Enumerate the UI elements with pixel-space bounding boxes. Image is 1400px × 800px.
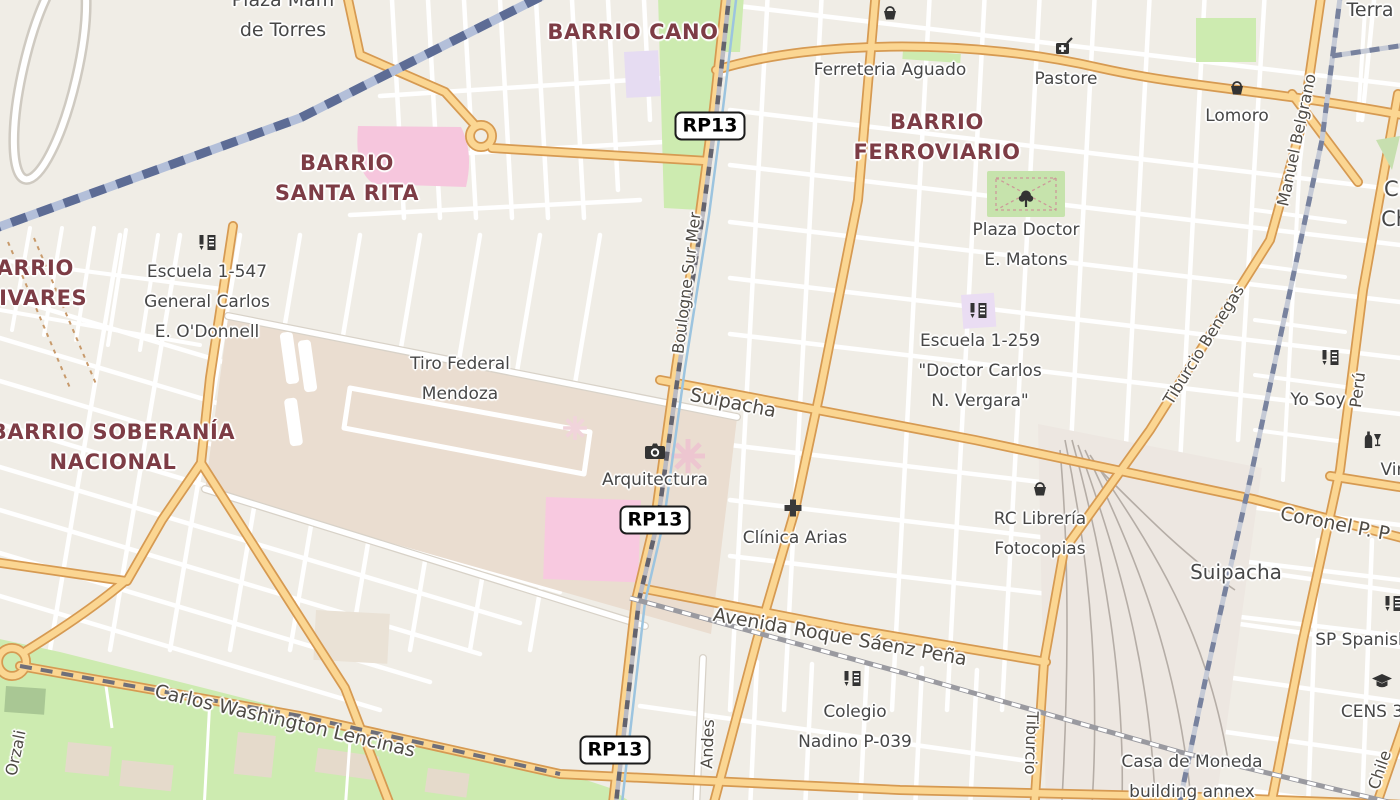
street-label-coronel-p: Coronel P. P bbox=[1278, 499, 1393, 550]
street-label-suipacha: Suipacha bbox=[687, 380, 778, 426]
street-label-carlos-washington-lencinas: Carlos Washington Lencinas bbox=[152, 676, 418, 765]
poi-label-arquitectura: Arquitectura bbox=[602, 465, 708, 495]
poi-label-pastore: Pastore bbox=[1035, 64, 1098, 94]
poi-label-colegio-nadino-text: Colegio bbox=[798, 697, 912, 727]
poi-label-tiro-federal-mendoza: Tiro FederalMendoza bbox=[410, 349, 510, 409]
neighborhood-label-barrio-santa-rita-text: BARRIO bbox=[275, 148, 419, 178]
neighborhood-label-barrio-olivares-text: BARRIO bbox=[0, 253, 87, 283]
poi-label-escuela-1-259-text: N. Vergara" bbox=[918, 386, 1041, 416]
poi-label-plaza-doctor-e-matons: Plaza DoctorE. Matons bbox=[972, 215, 1079, 275]
poi-label-plaza-de-torres-text: Plaza Mam bbox=[232, 0, 335, 15]
street-label-tiburcio: Tiburcio bbox=[1015, 711, 1047, 775]
poi-label-escuela-1-547-text: General Carlos bbox=[144, 287, 270, 317]
neighborhood-label-barrio-olivares-text: OLIVARES bbox=[0, 283, 87, 313]
route-badge-rp13-north: RP13 bbox=[675, 112, 746, 141]
neighborhood-label-barrio-santa-rita: BARRIOSANTA RITA bbox=[275, 148, 419, 208]
neighborhood-label-barrio-olivares: BARRIOOLIVARES bbox=[0, 253, 87, 313]
poi-label-suipacha-area: Suipacha bbox=[1190, 557, 1282, 587]
poi-label-cens-3-text: CENS 3 bbox=[1341, 697, 1400, 727]
neighborhood-label-barrio-ferroviario: BARRIOFERROVIARIO bbox=[853, 107, 1020, 167]
street-label-andes-text: Andes bbox=[692, 719, 724, 769]
poi-label-plaza-de-torres: Plaza Mamde Torres bbox=[232, 0, 335, 45]
poi-label-lomoro: Lomoro bbox=[1205, 101, 1269, 131]
street-label-orzali-text: Orzali bbox=[0, 727, 35, 778]
poi-label-terra: Terra bbox=[1347, 0, 1394, 25]
poi-label-ce-chi-text: CE bbox=[1381, 174, 1400, 204]
poi-label-colegio-nadino-text: Nadino P-039 bbox=[798, 727, 912, 757]
poi-label-plaza-doctor-e-matons-text: Plaza Doctor bbox=[972, 215, 1079, 245]
neighborhood-label-barrio-cano-text: BARRIO CANO bbox=[547, 17, 718, 47]
poi-label-escuela-1-547-text: Escuela 1-547 bbox=[144, 257, 270, 287]
poi-label-escuela-1-259: Escuela 1-259"Doctor CarlosN. Vergara" bbox=[918, 326, 1041, 416]
neighborhood-label-barrio-ferroviario-text: BARRIO bbox=[853, 107, 1020, 137]
street-label-manuel-belgrano-text: Manuel Belgrano bbox=[1268, 71, 1325, 209]
poi-label-terra-text: Terra bbox=[1347, 0, 1394, 25]
neighborhood-label-barrio-santa-rita-text: SANTA RITA bbox=[275, 178, 419, 208]
poi-label-yo-soy-text: Yo Soy bbox=[1290, 385, 1345, 415]
street-label-peru: Perú bbox=[1341, 370, 1375, 409]
neighborhood-label-barrio-soberania-nacional-text: BARRIO SOBERANÍA bbox=[0, 417, 235, 447]
poi-label-ce-chi: CEChi bbox=[1381, 174, 1400, 234]
street-label-boulogne-sur-mer: Boulogne Sur Mer bbox=[663, 210, 710, 355]
street-label-suipacha-text: Suipacha bbox=[687, 380, 778, 426]
poi-label-vineria: Vineri bbox=[1381, 455, 1400, 485]
street-label-avenida-roque-saenz-pena: Avenida Roque Sáenz Peña bbox=[711, 600, 970, 674]
neighborhood-label-barrio-cano: BARRIO CANO bbox=[547, 17, 718, 47]
street-label-chile: Chile bbox=[1359, 746, 1400, 794]
poi-label-tiro-federal-mendoza-text: Mendoza bbox=[410, 379, 510, 409]
poi-label-plaza-doctor-e-matons-text: E. Matons bbox=[972, 245, 1079, 275]
poi-label-suipacha-area-text: Suipacha bbox=[1190, 557, 1282, 587]
poi-label-vineria-text: Vineri bbox=[1381, 455, 1400, 485]
street-label-andes: Andes bbox=[692, 719, 724, 769]
street-label-boulogne-sur-mer-text: Boulogne Sur Mer bbox=[663, 210, 710, 355]
route-badge-rp13-mid: RP13 bbox=[620, 506, 691, 535]
poi-label-tiro-federal-mendoza-text: Tiro Federal bbox=[410, 349, 510, 379]
poi-label-plaza-de-torres-text: de Torres bbox=[232, 15, 335, 45]
street-label-peru-text: Perú bbox=[1341, 370, 1375, 409]
poi-label-yo-soy: Yo Soy bbox=[1290, 385, 1345, 415]
street-label-manuel-belgrano: Manuel Belgrano bbox=[1268, 71, 1325, 209]
poi-label-ferreteria-aguado: Ferreteria Aguado bbox=[814, 55, 967, 85]
street-label-avenida-roque-saenz-pena-text: Avenida Roque Sáenz Peña bbox=[711, 600, 970, 674]
street-label-coronel-p-text: Coronel P. P bbox=[1278, 499, 1393, 550]
street-label-tiburcio-benegas: Tiburcio Benegas bbox=[1155, 279, 1253, 411]
map-viewport[interactable]: BARRIO CANOBARRIOFERROVIARIOBARRIOSANTA … bbox=[0, 0, 1400, 800]
poi-label-escuela-1-547-text: E. O'Donnell bbox=[144, 317, 270, 347]
neighborhood-label-barrio-soberania-nacional-text: NACIONAL bbox=[0, 447, 235, 477]
poi-label-escuela-1-547: Escuela 1-547General CarlosE. O'Donnell bbox=[144, 257, 270, 347]
poi-label-rc-libreria-fotocopias: RC LibreríaFotocopias bbox=[994, 504, 1086, 564]
poi-label-escuela-1-259-text: "Doctor Carlos bbox=[918, 356, 1041, 386]
poi-label-rc-libreria-fotocopias-text: Fotocopias bbox=[994, 534, 1086, 564]
poi-label-casa-de-moneda-text: Casa de Moneda bbox=[1121, 747, 1262, 777]
neighborhood-label-barrio-soberania-nacional: BARRIO SOBERANÍANACIONAL bbox=[0, 417, 235, 477]
poi-label-clinica-arias: Clínica Arias bbox=[743, 523, 848, 553]
poi-label-sp-spanish-text: SP Spanish bbox=[1315, 625, 1400, 655]
poi-label-pastore-text: Pastore bbox=[1035, 64, 1098, 94]
poi-label-rc-libreria-fotocopias-text: RC Librería bbox=[994, 504, 1086, 534]
poi-label-casa-de-moneda-text: building annex bbox=[1121, 777, 1262, 800]
street-label-orzali: Orzali bbox=[0, 727, 35, 778]
poi-label-colegio-nadino: ColegioNadino P-039 bbox=[798, 697, 912, 757]
poi-label-casa-de-moneda: Casa de Monedabuilding annex bbox=[1121, 747, 1262, 800]
neighborhood-label-barrio-ferroviario-text: FERROVIARIO bbox=[853, 137, 1020, 167]
map-labels-layer: BARRIO CANOBARRIOFERROVIARIOBARRIOSANTA … bbox=[0, 0, 1400, 800]
street-label-tiburcio-text: Tiburcio bbox=[1015, 711, 1047, 775]
poi-label-ferreteria-aguado-text: Ferreteria Aguado bbox=[814, 55, 967, 85]
poi-label-cens-3: CENS 3 bbox=[1341, 697, 1400, 727]
poi-label-lomoro-text: Lomoro bbox=[1205, 101, 1269, 131]
street-label-carlos-washington-lencinas-text: Carlos Washington Lencinas bbox=[152, 676, 418, 765]
route-badge-rp13-south: RP13 bbox=[580, 736, 651, 765]
street-label-chile-text: Chile bbox=[1359, 746, 1400, 794]
poi-label-arquitectura-text: Arquitectura bbox=[602, 465, 708, 495]
poi-label-clinica-arias-text: Clínica Arias bbox=[743, 523, 848, 553]
street-label-tiburcio-benegas-text: Tiburcio Benegas bbox=[1155, 279, 1253, 411]
poi-label-escuela-1-259-text: Escuela 1-259 bbox=[918, 326, 1041, 356]
poi-label-ce-chi-text: Chi bbox=[1381, 204, 1400, 234]
poi-label-sp-spanish: SP Spanish bbox=[1315, 625, 1400, 655]
